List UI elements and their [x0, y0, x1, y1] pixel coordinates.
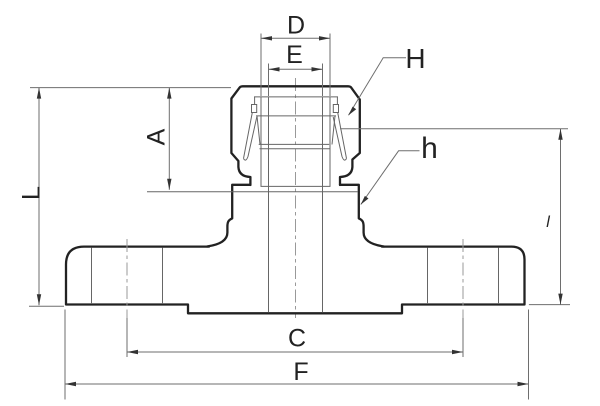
- svg-text:l: l: [546, 214, 550, 231]
- svg-text:D: D: [287, 12, 305, 40]
- svg-text:h: h: [421, 132, 438, 165]
- svg-text:L: L: [18, 186, 46, 200]
- svg-text:C: C: [288, 325, 306, 353]
- svg-text:E: E: [286, 41, 303, 69]
- svg-text:H: H: [405, 43, 425, 74]
- svg-text:F: F: [293, 358, 308, 386]
- svg-text:A: A: [143, 128, 171, 145]
